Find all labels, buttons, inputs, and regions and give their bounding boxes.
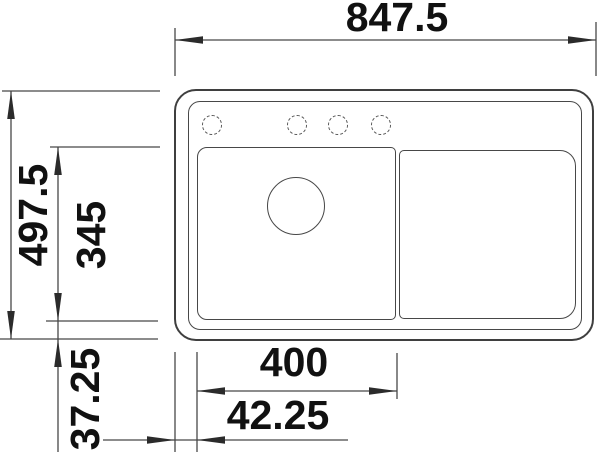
dim-overall-width-label: 847.5: [297, 0, 497, 38]
faucet-hole-1: [202, 115, 222, 135]
side-bowl-outline: [399, 150, 576, 319]
sink-technical-drawing: 847.5 497.5 345 37.25 400 42.25: [0, 0, 600, 452]
dim-bowl-bottom-offset-label: 37.25: [64, 299, 106, 452]
faucet-hole-4: [371, 115, 391, 135]
dim-bowl-left-offset-label: 42.25: [178, 394, 378, 436]
drain-hole-circle: [267, 177, 325, 235]
dim-bowl-width-label: 400: [194, 341, 394, 383]
faucet-hole-2: [287, 115, 307, 135]
faucet-hole-3: [328, 115, 348, 135]
dim-overall-height-label: 497.5: [12, 115, 54, 315]
